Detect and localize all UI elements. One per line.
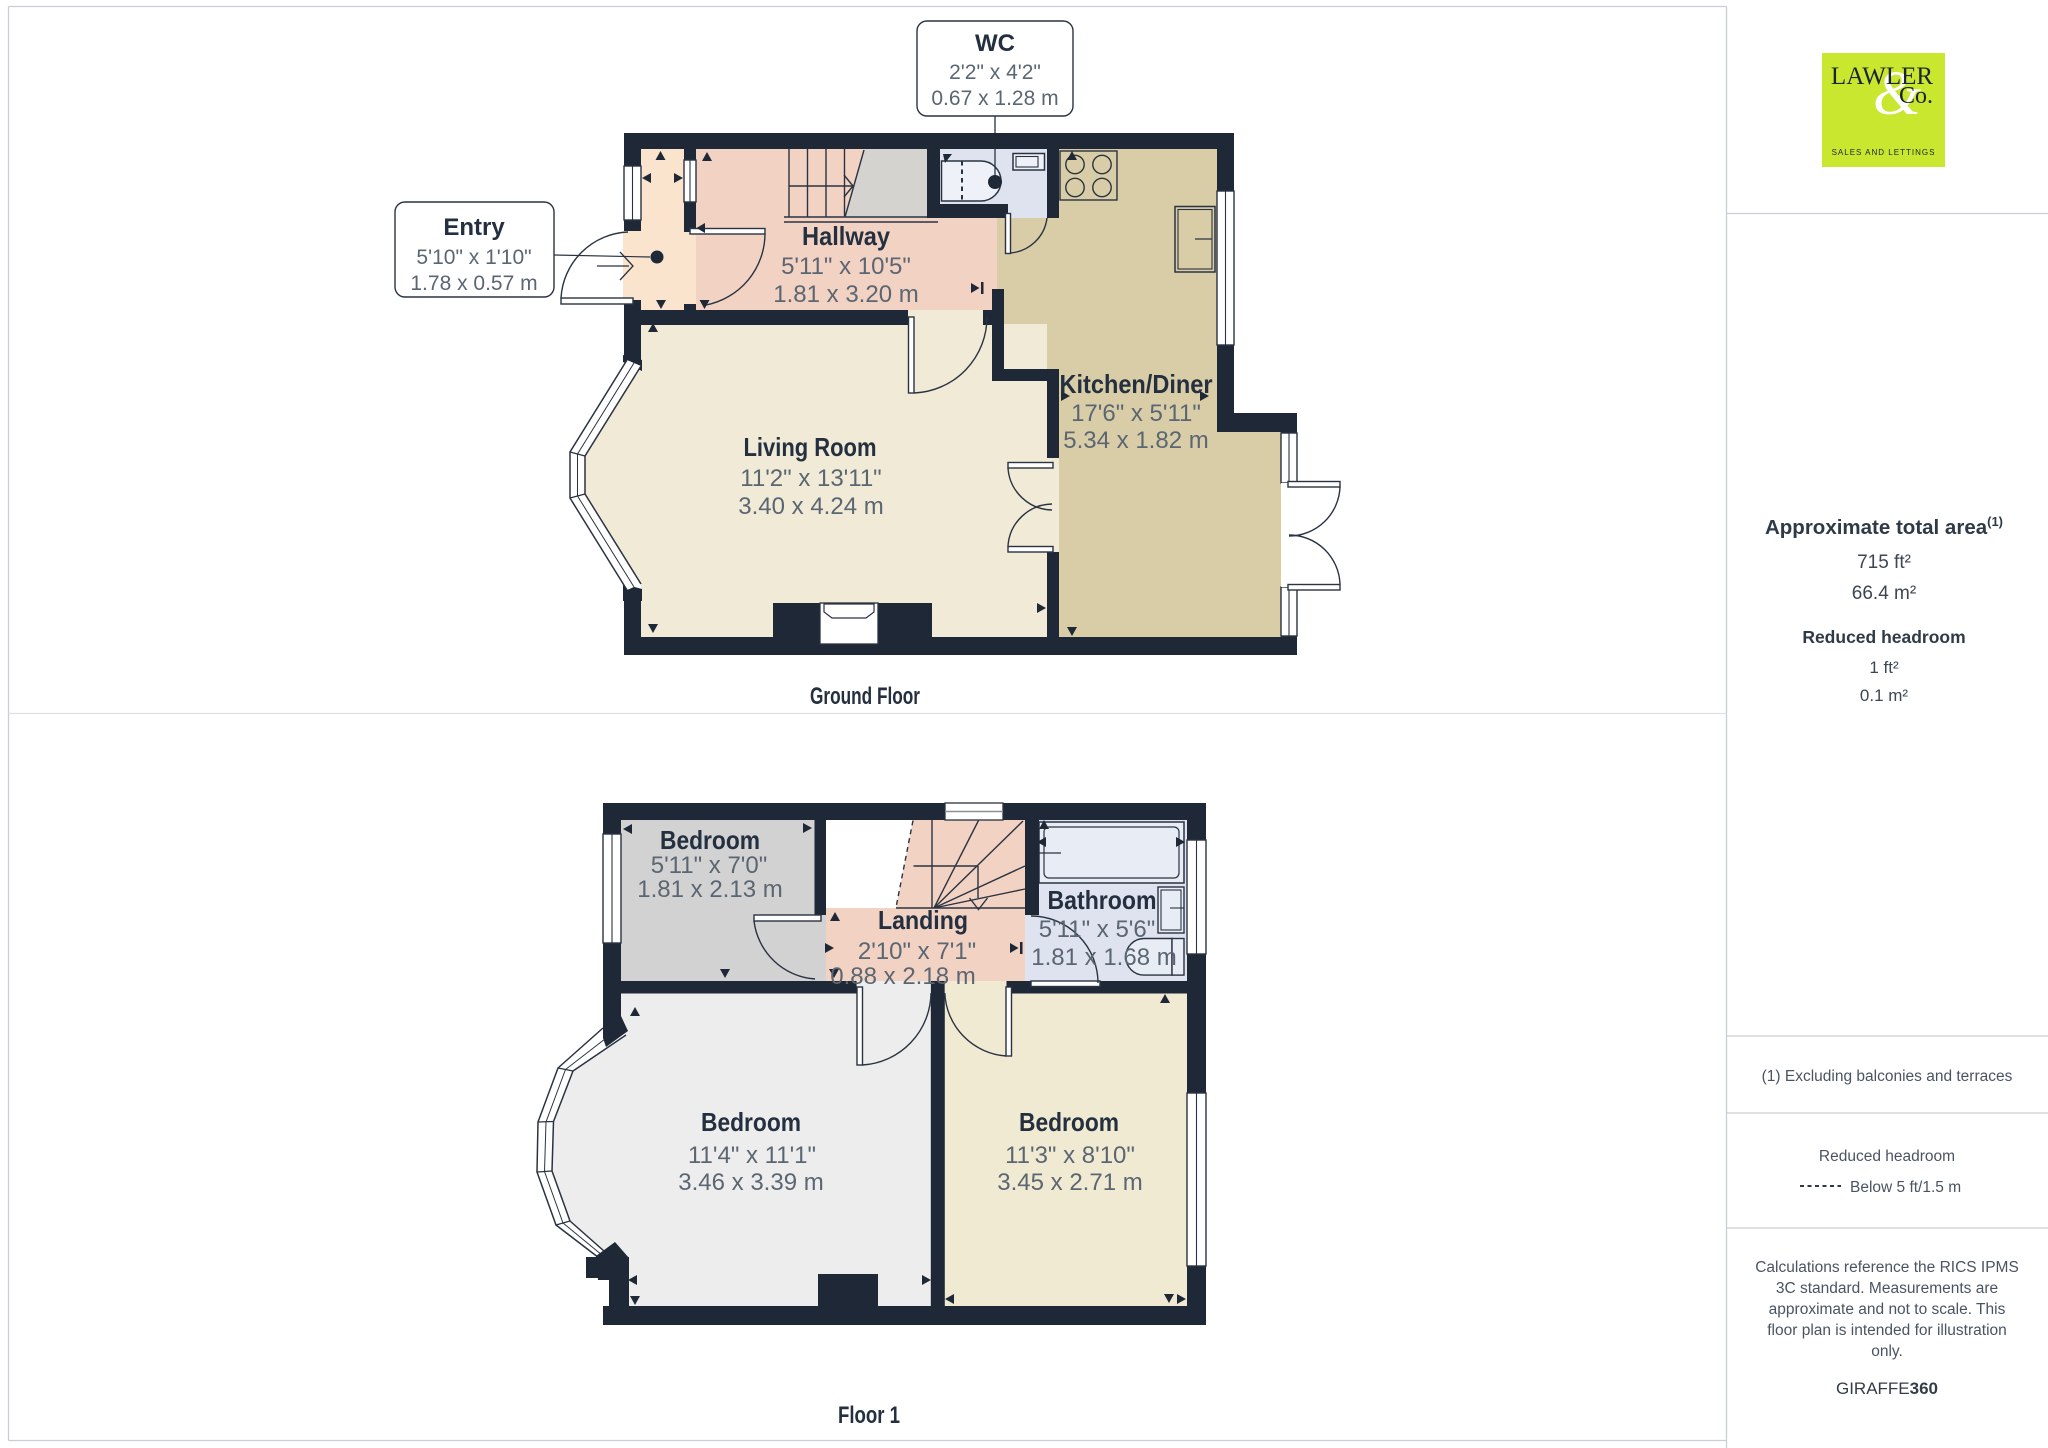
svg-text:Floor 1: Floor 1 [838, 1402, 900, 1429]
svg-text:11'2" x 13'11": 11'2" x 13'11" [740, 465, 881, 492]
svg-text:3C standard. Measurements are: 3C standard. Measurements are [1776, 1280, 1998, 1297]
svg-text:1.81 x 2.13 m: 1.81 x 2.13 m [637, 876, 782, 903]
svg-text:3.46 x 3.39 m: 3.46 x 3.39 m [678, 1169, 823, 1196]
svg-text:WC: WC [975, 30, 1015, 57]
svg-text:5'10" x 1'10": 5'10" x 1'10" [416, 246, 531, 269]
svg-text:17'6" x 5'11": 17'6" x 5'11" [1071, 400, 1201, 427]
svg-text:Co.: Co. [1899, 83, 1933, 109]
svg-text:Ground Floor: Ground Floor [810, 683, 920, 710]
svg-text:3.45 x 2.71 m: 3.45 x 2.71 m [997, 1169, 1142, 1196]
svg-text:5.34 x 1.82 m: 5.34 x 1.82 m [1063, 427, 1208, 454]
svg-text:GIRAFFE360: GIRAFFE360 [1836, 1379, 1938, 1398]
svg-text:Bedroom: Bedroom [1019, 1107, 1119, 1137]
svg-text:0.1 m²: 0.1 m² [1860, 686, 1909, 705]
svg-text:715 ft²: 715 ft² [1857, 552, 1911, 573]
svg-text:Below 5 ft/1.5 m: Below 5 ft/1.5 m [1850, 1179, 1961, 1196]
svg-text:Bedroom: Bedroom [701, 1107, 801, 1137]
svg-text:SALES AND LETTINGS: SALES AND LETTINGS [1832, 148, 1936, 157]
svg-text:3.40 x 4.24 m: 3.40 x 4.24 m [738, 493, 883, 520]
svg-text:2'10" x 7'1": 2'10" x 7'1" [858, 938, 976, 965]
svg-text:Kitchen/Diner: Kitchen/Diner [1060, 369, 1213, 399]
svg-text:0.88 x 2.18 m: 0.88 x 2.18 m [830, 963, 975, 990]
svg-text:Reduced headroom: Reduced headroom [1819, 1148, 1955, 1165]
svg-text:Landing: Landing [878, 905, 968, 935]
svg-text:11'4" x 11'1": 11'4" x 11'1" [688, 1142, 816, 1169]
svg-text:approximate and not to scale.: approximate and not to scale. This [1769, 1301, 2006, 1318]
svg-text:Bathroom: Bathroom [1048, 885, 1157, 915]
svg-text:Reduced headroom: Reduced headroom [1802, 627, 1965, 647]
svg-text:1 ft²: 1 ft² [1869, 658, 1899, 677]
svg-text:2'2" x 4'2": 2'2" x 4'2" [949, 61, 1041, 84]
svg-text:Approximate total area(1): Approximate total area(1) [1765, 514, 2003, 539]
svg-text:11'3" x 8'10": 11'3" x 8'10" [1005, 1142, 1135, 1169]
svg-text:66.4 m²: 66.4 m² [1852, 583, 1916, 604]
svg-text:1.81 x 3.20 m: 1.81 x 3.20 m [773, 281, 918, 308]
svg-text:1.78 x 0.57 m: 1.78 x 0.57 m [410, 272, 537, 295]
svg-text:Living Room: Living Room [744, 432, 877, 462]
svg-text:Calculations reference the RIC: Calculations reference the RICS IPMS [1755, 1259, 2019, 1276]
svg-text:only.: only. [1871, 1343, 1903, 1360]
svg-text:5'11" x 10'5": 5'11" x 10'5" [781, 253, 911, 280]
svg-text:0.67 x 1.28 m: 0.67 x 1.28 m [931, 87, 1058, 110]
svg-text:floor plan is intended for ill: floor plan is intended for illustration [1767, 1322, 2007, 1339]
svg-text:1.81 x 1.68 m: 1.81 x 1.68 m [1031, 944, 1176, 971]
svg-text:5'11" x 5'6": 5'11" x 5'6" [1039, 916, 1156, 943]
svg-text:5'11" x 7'0": 5'11" x 7'0" [651, 852, 768, 879]
svg-text:Bedroom: Bedroom [660, 825, 760, 855]
svg-text:Entry: Entry [443, 214, 505, 241]
svg-text:Hallway: Hallway [802, 221, 890, 251]
svg-text:(1) Excluding balconies and te: (1) Excluding balconies and terraces [1762, 1068, 2013, 1085]
